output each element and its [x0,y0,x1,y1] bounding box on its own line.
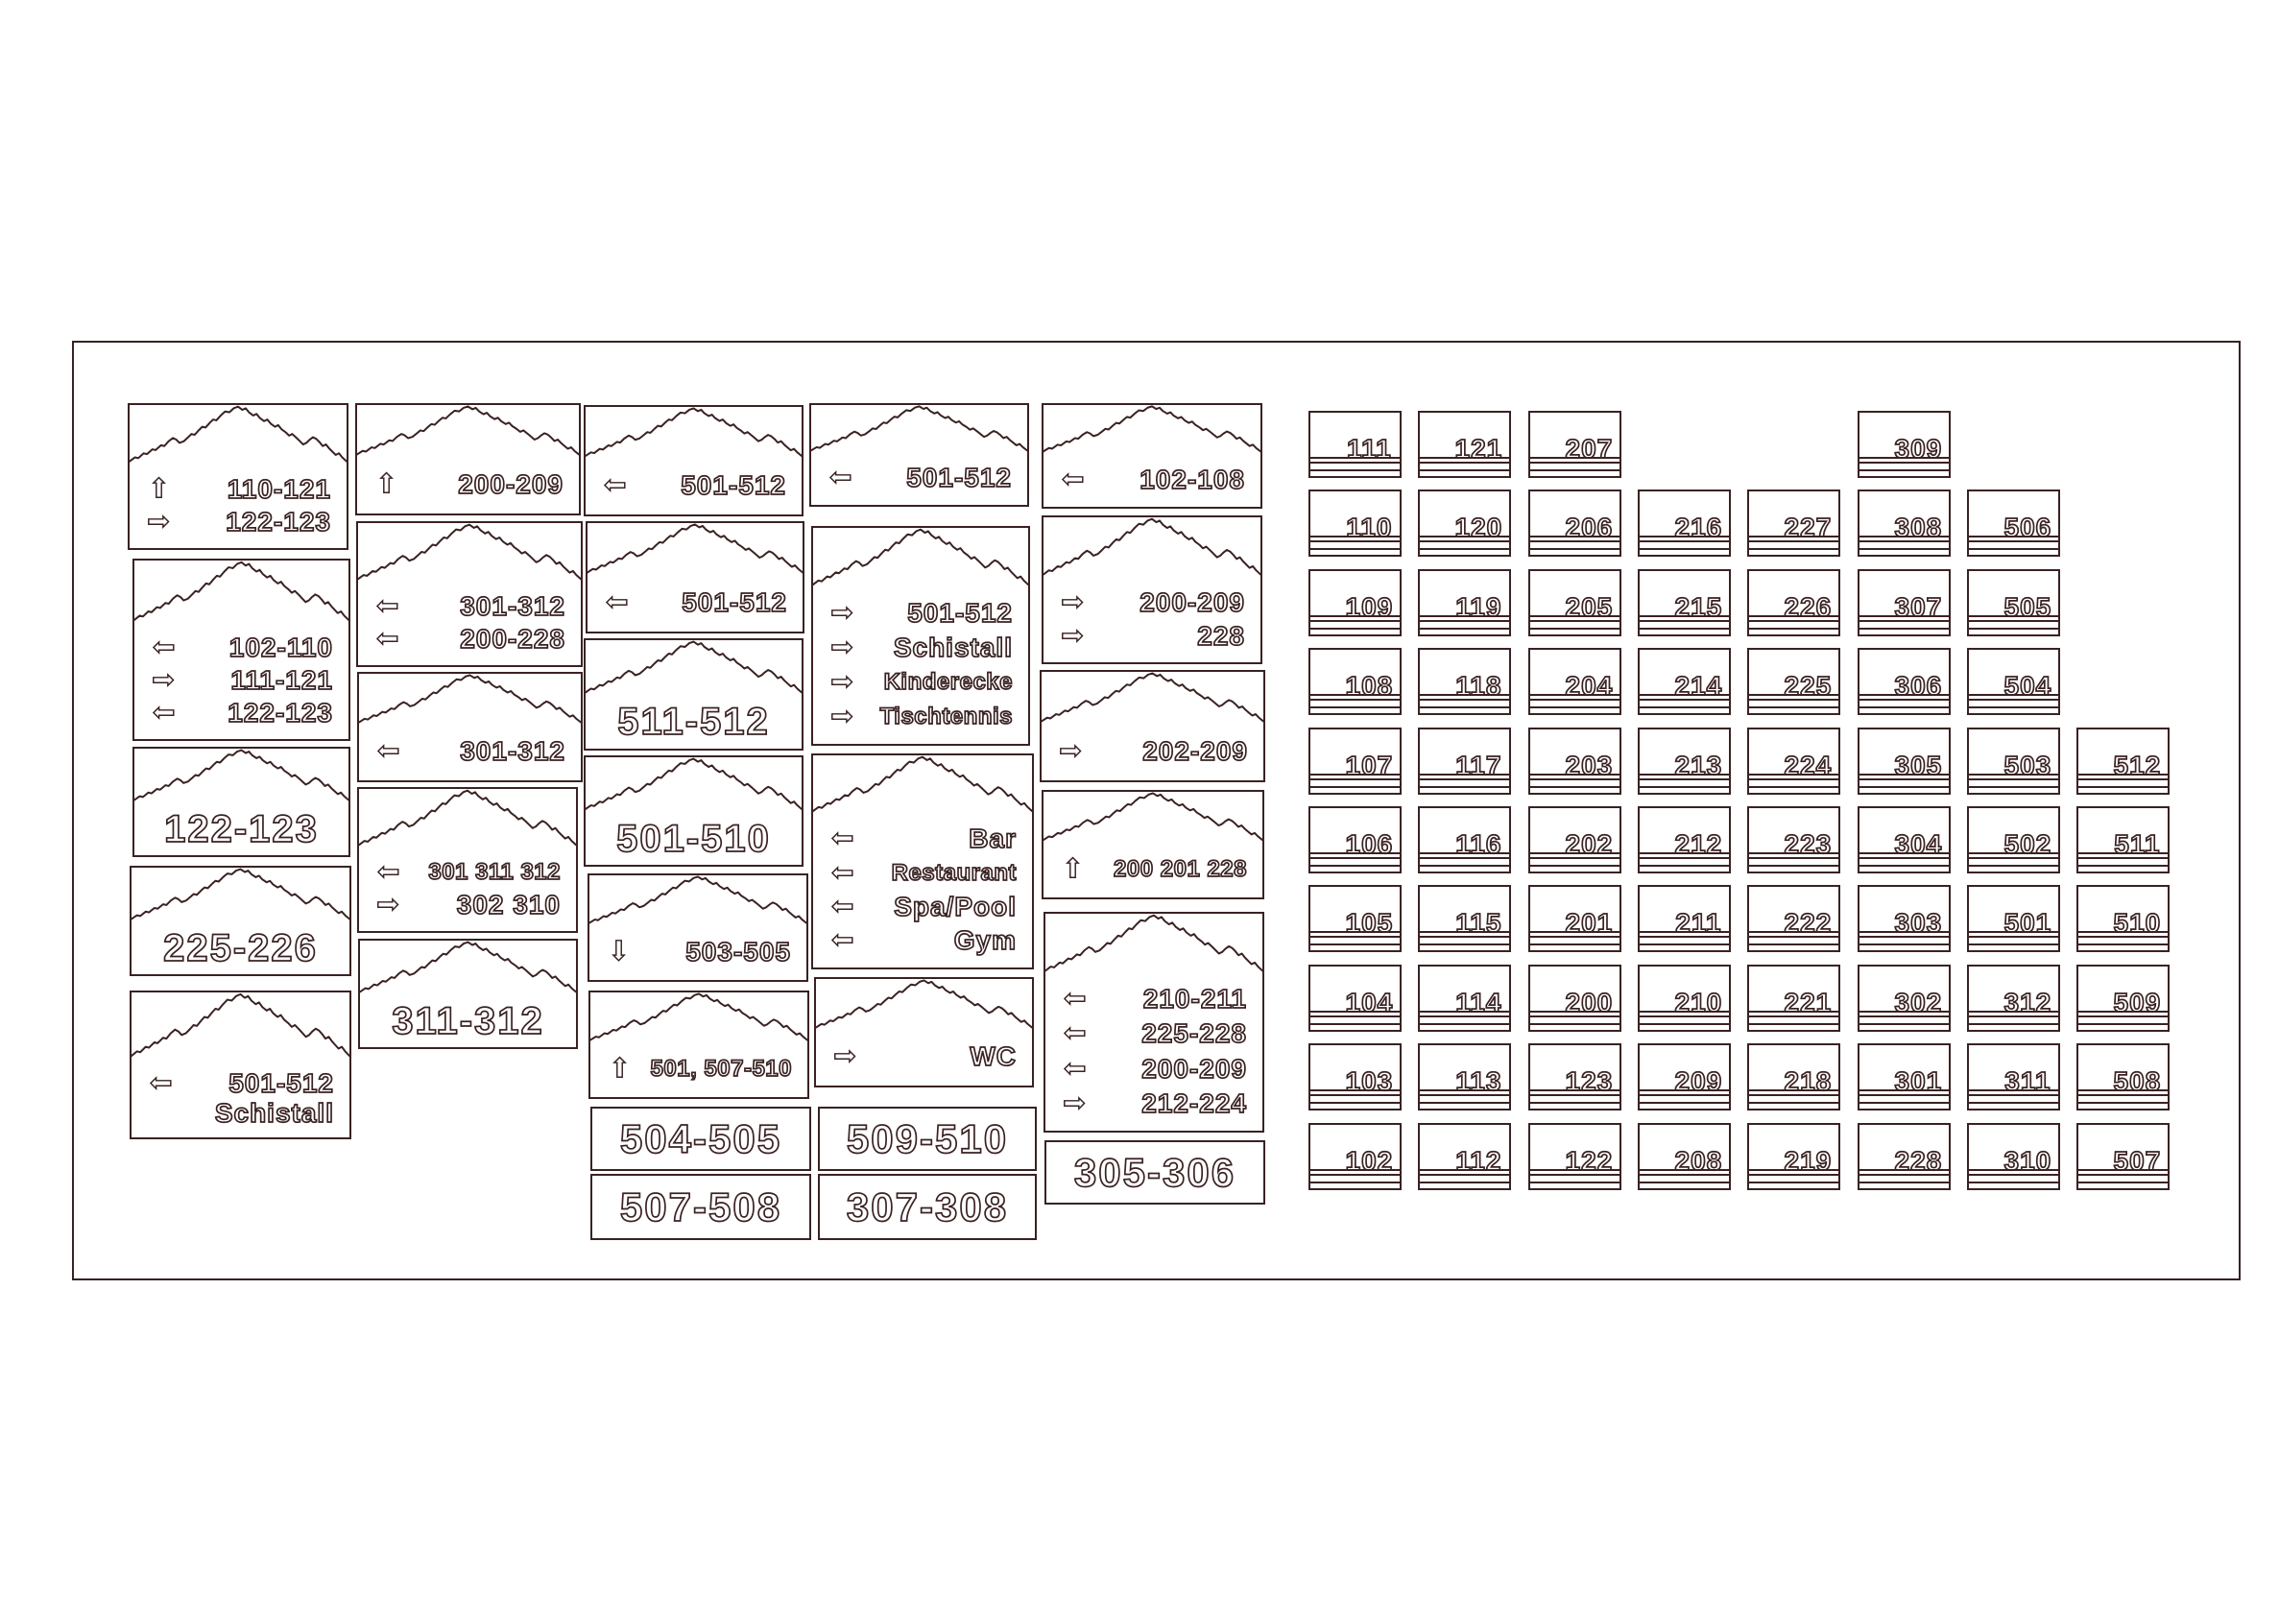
plate-rule-line [2078,1174,2168,1176]
mountain-ridge-graphic [1044,405,1260,458]
plate-rule-line [1969,852,2058,854]
arrow-right-icon: ⇨ [830,668,863,697]
sign-row-text: 301 311 312 [428,861,561,884]
sign-row-text: 102-110 [229,634,333,661]
sign-row-text: WC [970,1043,1017,1070]
plate-rule-line [1640,943,1729,945]
wayfinding-sign-b2: ⇦301-312⇦200-228 [356,521,583,667]
plate-rule-line [1749,694,1838,696]
sign-row-text: Gym [954,927,1017,954]
arrow-down-icon: ⇩ [607,938,639,967]
plate-rule-line [1530,1011,1619,1013]
sign-rows: ⇦501-512 [811,461,1027,495]
plate-rule-line [1310,1174,1400,1176]
arrow-left-icon: ⇦ [1063,1019,1095,1048]
plate-rule-line [1859,936,1949,938]
mountain-ridge-graphic [130,405,347,469]
plate-rule-line [1420,620,1509,622]
sign-rows: ⇦210-211⇦225-228⇦200-209⇨212-224 [1045,982,1262,1121]
mountain-ridge-graphic [360,941,576,999]
room-number-plate-223: 223 [1747,806,1840,873]
mountain-ridge-graphic [813,755,1032,819]
plate-rule-line [1749,865,1838,867]
plate-rule-line [1310,694,1400,696]
room-number-plate-228: 228 [1858,1123,1951,1190]
sign-row-text: 302 310 [457,892,561,919]
wayfinding-sign-b5: 311-312 [358,939,578,1049]
arrow-left-icon: ⇦ [1061,466,1093,494]
plate-rule-line [2078,774,2168,776]
plate-rule-line [1530,936,1619,938]
plate-rule-line [1749,615,1838,617]
plate-rule-line [1530,706,1619,708]
plate-rule-line [1749,540,1838,542]
arrow-left-icon: ⇦ [605,588,637,617]
plate-rule-line [1420,786,1509,788]
wayfinding-sign-e4: ⇧200 201 228 [1042,790,1264,899]
sign-row: ⇨111-121 [134,666,348,695]
plate-rule-line [2078,857,2168,859]
plate-rule-line [1969,706,2058,708]
plate-rule-line [1859,778,1949,780]
sign-row: ⇨Kinderecke [813,668,1028,697]
plate-rule-line [1859,1182,1949,1183]
sign-row: ⇦102-108 [1044,466,1260,494]
arrow-left-icon: ⇦ [152,633,184,662]
sign-rows: ⇧200 201 228 [1044,850,1262,888]
plate-rule-line [1969,628,2058,630]
mountain-ridge-graphic [357,405,579,462]
plate-rule-line [1530,457,1619,459]
mountain-ridge-graphic [816,979,1032,1035]
room-number-plate-206: 206 [1528,490,1621,557]
mountain-ridge-graphic [813,528,1028,593]
mountain-ridge-graphic [132,868,349,926]
plate-rule-line [1530,865,1619,867]
sign-row-text: 501-512 [681,472,786,499]
sign-row: ⇦225-228 [1045,1019,1262,1048]
plate-rule-line [1530,1174,1619,1176]
room-number-plate-302: 302 [1858,965,1951,1032]
room-number-plate-105: 105 [1308,885,1402,952]
sign-range-text: 225-226 [132,923,349,974]
sign-range-text: 122-123 [134,804,348,855]
plate-rule-line [1420,936,1509,938]
plate-rule-line [1969,774,2058,776]
strip-range-text: 305-306 [1046,1142,1263,1203]
wayfinding-sign-b1: ⇧200-209 [355,403,581,515]
mountain-ridge-graphic [588,523,803,580]
arrow-left-icon: ⇦ [830,859,863,888]
plate-rule-line [1969,1174,2058,1176]
plate-rule-line [1420,1089,1509,1091]
sign-row-text: 111-121 [230,667,333,694]
mountain-ridge-graphic [134,749,348,807]
plate-rule-line [2078,1169,2168,1171]
arrow-up-icon: ⇧ [374,470,407,499]
room-number-plate-109: 109 [1308,569,1402,636]
plate-rule-line [1640,1023,1729,1025]
room-number-plate-301: 301 [1858,1043,1951,1111]
plate-rule-line [1640,1182,1729,1183]
plate-rule-line [1310,548,1400,550]
plate-rule-line [1749,774,1838,776]
sign-row: ⇧501, 507-510 [590,1055,807,1084]
plate-rule-line [1530,1182,1619,1183]
plate-rule-line [1310,1094,1400,1096]
plate-rule-line [1310,1169,1400,1171]
sign-rows: ⇦301-312 [359,733,581,771]
sign-rows: ⇦301-312⇦200-228 [358,590,581,656]
plate-rule-line [2078,1094,2168,1096]
plate-rule-line [1969,1089,2058,1091]
room-number-plate-508: 508 [2076,1043,2170,1111]
plate-rule-line [1640,1011,1729,1013]
plate-rule-line [1969,778,2058,780]
plate-rule-line [1420,852,1509,854]
arrow-up-icon: ⇧ [1061,855,1093,884]
room-number-plate-501: 501 [1967,885,2060,952]
plate-rule-line [1420,1023,1509,1025]
room-number-plate-116: 116 [1418,806,1511,873]
sign-row-text: 501-512 [906,465,1012,491]
wayfinding-sign-c1: ⇦501-512 [584,405,804,516]
room-number-plate-509: 509 [2076,965,2170,1032]
plate-rule-line [1310,1102,1400,1104]
wayfinding-sign-e2: ⇨200-209⇨228 [1042,515,1262,664]
wayfinding-sign-b4: ⇦301 311 312⇨302 310 [357,787,578,933]
wayfinding-sign-c4: 501-510 [584,755,804,867]
plate-rule-line [1310,540,1400,542]
plate-rule-line [1749,857,1838,859]
wayfinding-sign-c7: 504-505 [590,1107,811,1171]
plate-rule-line [1859,457,1949,459]
plate-rule-line [1969,1102,2058,1104]
plate-rule-line [1640,778,1729,780]
plate-rule-line [1859,1174,1949,1176]
plate-rule-line [1420,1102,1509,1104]
room-number-plate-506: 506 [1967,490,2060,557]
plate-rule-line [1420,857,1509,859]
plate-rule-line [1420,1015,1509,1017]
room-number-plate-208: 208 [1638,1123,1731,1190]
sign-row: ⇨228 [1044,622,1260,651]
plate-rule-line [1310,778,1400,780]
arrow-right-icon: ⇨ [830,633,863,662]
sign-row: ⇨WC [816,1042,1032,1071]
room-number-plate-107: 107 [1308,728,1402,795]
sign-row-text: 200-228 [460,626,565,653]
sign-row-text: Schistall [894,634,1013,661]
plate-rule-line [1530,1094,1619,1096]
arrow-left-icon: ⇦ [376,737,409,766]
strip-range-text: 504-505 [592,1109,809,1169]
room-number-plate-216: 216 [1638,490,1731,557]
mountain-ridge-graphic [586,640,802,700]
arrow-up-icon: ⇧ [147,475,180,504]
wayfinding-sign-a5: ⇦501-512Schistall [130,991,351,1139]
plate-rule-line [1420,1174,1509,1176]
room-number-plate-310: 310 [1967,1123,2060,1190]
plate-rule-line [1749,786,1838,788]
plate-rule-line [1640,1102,1729,1104]
sign-row: ⇦501-512 [811,464,1027,492]
room-number-plate-212: 212 [1638,806,1731,873]
plate-rule-line [1969,1169,2058,1171]
room-number-plate-308: 308 [1858,490,1951,557]
plate-rule-line [1859,931,1949,933]
arrow-left-icon: ⇦ [149,1069,181,1098]
room-number-plate-209: 209 [1638,1043,1731,1111]
plate-rule-line [1859,1015,1949,1017]
plate-rule-line [1859,1011,1949,1013]
arrow-right-icon: ⇨ [1063,1089,1095,1118]
sign-row-text: 202-209 [1142,738,1248,765]
arrow-left-icon: ⇦ [830,893,863,921]
wayfinding-sign-d6: 307-308 [818,1174,1037,1240]
plate-rule-line [1859,943,1949,945]
plate-rule-line [1640,706,1729,708]
room-number-plate-122: 122 [1528,1123,1621,1190]
sign-row: ⇦Restaurant [813,859,1032,888]
plate-rule-line [1530,462,1619,464]
plate-rule-line [1640,936,1729,938]
plate-rule-line [1530,694,1619,696]
plate-rule-line [1749,1094,1838,1096]
plate-rule-line [1640,865,1729,867]
sign-row-text: 501-512 [907,600,1013,627]
room-number-plate-511: 511 [2076,806,2170,873]
plate-rule-line [1420,615,1509,617]
plate-rule-line [1310,1011,1400,1013]
plate-rule-line [1640,852,1729,854]
plate-rule-line [1420,943,1509,945]
plate-rule-line [1640,540,1729,542]
plate-rule-line [1640,857,1729,859]
room-number-plate-224: 224 [1747,728,1840,795]
plate-rule-line [1969,931,2058,933]
arrow-left-icon: ⇦ [375,592,408,621]
plate-rule-line [1530,774,1619,776]
room-number-plate-202: 202 [1528,806,1621,873]
room-number-plate-200: 200 [1528,965,1621,1032]
sign-rows: ⇦102-110⇨111-121⇦122-123 [134,632,348,729]
plate-rule-line [1749,1023,1838,1025]
mountain-ridge-graphic [1045,914,1262,979]
plate-rule-line [1310,1015,1400,1017]
plate-rule-line [1420,778,1509,780]
plate-rule-line [1749,1011,1838,1013]
plate-rule-line [1530,540,1619,542]
plate-rule-line [1859,1094,1949,1096]
room-number-plate-204: 204 [1528,648,1621,715]
plate-rule-line [1640,615,1729,617]
sign-rows: ⇦501-512Schistall [132,1069,349,1129]
plate-rule-line [1969,548,2058,550]
mountain-ridge-graphic [1042,672,1263,728]
sign-row-text: 122-123 [226,509,331,536]
strip-range-text: 307-308 [820,1176,1035,1238]
plate-rule-line [2078,1089,2168,1091]
plate-rule-line [1310,706,1400,708]
room-number-plate-123: 123 [1528,1043,1621,1111]
sign-row: ⇦301-312 [358,592,581,621]
room-number-plate-512: 512 [2076,728,2170,795]
plate-rule-line [1640,699,1729,701]
plate-rule-line [1420,1169,1509,1171]
sign-row: ⇦501-512 [132,1069,349,1098]
plate-rule-line [1749,1102,1838,1104]
plate-rule-line [1749,620,1838,622]
plate-rule-line [1530,778,1619,780]
wayfinding-sign-c8: 507-508 [590,1174,811,1240]
plate-rule-line [1420,706,1509,708]
plate-rule-line [1310,857,1400,859]
room-number-plate-309: 309 [1858,411,1951,478]
plate-rule-line [1310,469,1400,471]
sign-row-text: 200-209 [458,471,564,498]
plate-rule-line [1530,943,1619,945]
sign-rows: ⇦102-108 [1044,462,1260,497]
plate-rule-line [1310,699,1400,701]
plate-rule-line [1859,699,1949,701]
arrow-right-icon: ⇨ [1059,737,1092,766]
plate-rule-line [1969,1023,2058,1025]
sign-rows: ⇧110-121⇨122-123 [130,473,347,538]
room-number-plate-110: 110 [1308,490,1402,557]
wayfinding-sign-a4: 225-226 [130,866,351,976]
plate-rule-line [1859,1169,1949,1171]
sign-row-text: 228 [1197,623,1245,650]
sign-row: ⇦301-312 [359,737,581,766]
plate-rule-line [1420,1094,1509,1096]
wayfinding-sign-e5: ⇦210-211⇦225-228⇦200-209⇨212-224 [1044,912,1264,1133]
plate-rule-line [1749,1015,1838,1017]
plate-rule-line [1749,628,1838,630]
plate-rule-line [1859,1102,1949,1104]
room-number-plate-214: 214 [1638,648,1731,715]
room-number-plate-215: 215 [1638,569,1731,636]
sign-row: ⇦122-123 [134,699,348,728]
mountain-ridge-graphic [358,523,581,587]
sign-row-text: Spa/Pool [894,894,1017,920]
room-number-plate-303: 303 [1858,885,1951,952]
wayfinding-sign-e3: ⇨202-209 [1040,670,1265,782]
wayfinding-sign-c5: ⇩503-505 [588,873,808,982]
plate-rule-line [1969,540,2058,542]
sign-row: ⇨Tischtennis [813,703,1028,731]
plate-rule-line [1310,774,1400,776]
plate-rule-line [1310,865,1400,867]
room-number-plate-305: 305 [1858,728,1951,795]
sign-rows: ⇨501-512⇨Schistall⇨Kinderecke⇨Tischtenni… [813,596,1028,734]
mountain-ridge-graphic [132,992,349,1065]
plate-rule-line [1530,786,1619,788]
plate-rule-line [1420,469,1509,471]
plate-rule-line [1859,615,1949,617]
plate-rule-line [1859,540,1949,542]
plate-rule-line [1640,786,1729,788]
sign-row: ⇨202-209 [1042,737,1263,766]
plate-rule-line [1969,1011,2058,1013]
room-number-plate-201: 201 [1528,885,1621,952]
plate-rule-line [1749,1182,1838,1183]
room-number-plate-304: 304 [1858,806,1951,873]
plate-rule-line [1859,548,1949,550]
wayfinding-sign-a3: 122-123 [132,747,350,857]
arrow-left-icon: ⇦ [1063,985,1095,1014]
room-number-plate-307: 307 [1858,569,1951,636]
arrow-left-icon: ⇦ [375,625,408,654]
sign-row-text: Tischtennis [880,705,1013,728]
wayfinding-sign-e6: 305-306 [1044,1140,1265,1205]
room-number-plate-117: 117 [1418,728,1511,795]
sign-row: ⇦200-228 [358,625,581,654]
sign-row: ⇦Spa/Pool [813,893,1032,921]
room-number-plate-207: 207 [1528,411,1621,478]
plate-rule-line [1859,857,1949,859]
sign-row-text: 501-512 [228,1070,334,1097]
plate-rule-line [1640,536,1729,537]
wayfinding-sign-b3: ⇦301-312 [357,672,583,782]
plate-rule-line [1969,615,2058,617]
mountain-ridge-graphic [811,405,1027,457]
plate-rule-line [1859,1089,1949,1091]
plate-rule-line [1859,706,1949,708]
plate-rule-line [1310,852,1400,854]
plate-rule-line [1749,936,1838,938]
plate-rule-line [1310,936,1400,938]
mountain-ridge-graphic [359,789,576,853]
wayfinding-sign-d4: ⇨WC [814,977,1034,1087]
sign-rows: ⇨WC [816,1039,1032,1076]
plate-rule-line [1969,694,2058,696]
room-number-plate-121: 121 [1418,411,1511,478]
room-number-plate-503: 503 [1967,728,2060,795]
plate-rule-line [1640,548,1729,550]
sign-row: ⇦501-512 [586,471,802,500]
sign-row-text: 200 201 228 [1114,858,1247,881]
room-number-plate-306: 306 [1858,648,1951,715]
room-number-plate-505: 505 [1967,569,2060,636]
plate-rule-line [1640,1169,1729,1171]
wayfinding-sign-e1: ⇦102-108 [1042,403,1262,509]
plate-rule-line [1859,628,1949,630]
sign-row-text: 301-312 [460,738,565,765]
sign-row-text: 301-312 [460,593,565,620]
plate-rule-line [1530,615,1619,617]
room-number-plate-102: 102 [1308,1123,1402,1190]
arrow-left-icon: ⇦ [1063,1055,1095,1084]
plate-rule-line [1310,786,1400,788]
plate-rule-line [1640,1089,1729,1091]
wayfinding-sign-c2: ⇦501-512 [586,521,804,633]
plate-rule-line [2078,1023,2168,1025]
plate-rule-line [1420,457,1509,459]
plate-rule-line [1969,536,2058,537]
sign-row: ⇨200-209 [1044,588,1260,617]
arrow-right-icon: ⇨ [152,666,184,695]
room-number-plate-226: 226 [1747,569,1840,636]
room-number-plate-106: 106 [1308,806,1402,873]
room-number-plate-218: 218 [1747,1043,1840,1111]
sign-row: ⇧110-121 [130,475,347,504]
plate-rule-line [1310,1023,1400,1025]
room-number-plate-219: 219 [1747,1123,1840,1190]
plate-rule-line [1969,857,2058,859]
room-number-plate-112: 112 [1418,1123,1511,1190]
plate-rule-line [1310,931,1400,933]
